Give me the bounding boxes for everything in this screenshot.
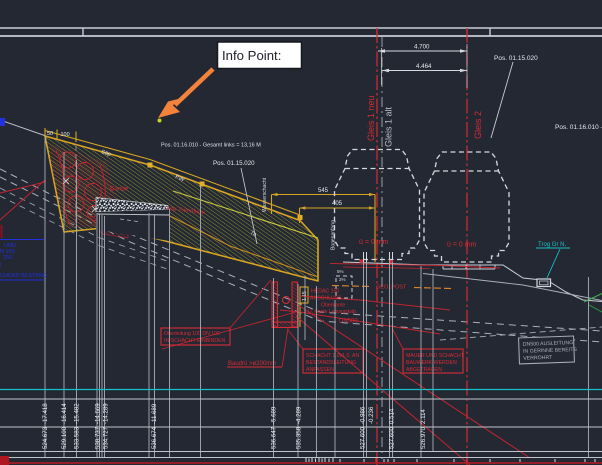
- svg-text:BESTANDSLEITUNG: BESTANDSLEITUNG: [306, 360, 356, 366]
- svg-text:538.737: 538.737: [95, 426, 102, 449]
- svg-text:CHEND BESTAND.: CHEND BESTAND.: [0, 273, 49, 279]
- svg-text:IN SCHACHT EINBINDEN: IN SCHACHT EINBINDEN: [164, 338, 226, 344]
- svg-text:Gleis 2: Gleis 2: [473, 111, 483, 139]
- svg-text:527.600: 527.600: [360, 426, 367, 449]
- svg-text:Oberleitung 100 DN 100: Oberleitung 100 DN 100: [164, 331, 220, 337]
- svg-text:4.464: 4.464: [416, 63, 432, 70]
- svg-text:-15.482: -15.482: [74, 403, 81, 424]
- svg-text:Pos. 01.15.020: Pos. 01.15.020: [213, 160, 255, 167]
- svg-text:-5.689: -5.689: [271, 406, 278, 424]
- svg-text:ABGETRAGEN: ABGETRAGEN: [406, 367, 442, 373]
- svg-text:526.970: 526.970: [420, 426, 427, 449]
- svg-text:Bogenanfang: Bogenanfang: [331, 220, 337, 250]
- svg-text:533.583: 533.583: [74, 426, 81, 449]
- svg-text:2%: 2%: [339, 277, 346, 282]
- svg-text:405: 405: [332, 201, 343, 207]
- svg-text:MAUER UND SCHACHT: MAUER UND SCHACHT: [406, 353, 465, 359]
- svg-text:Info Point:: Info Point:: [222, 48, 281, 63]
- svg-text:-17.418: -17.418: [42, 403, 49, 424]
- svg-text:Gleis 1 alt: Gleis 1 alt: [384, 106, 394, 147]
- svg-text:ü = 0 mm: ü = 0 mm: [447, 242, 477, 249]
- svg-text:527.600: 527.600: [389, 426, 396, 449]
- svg-text:529.100: 529.100: [61, 426, 68, 449]
- svg-text:-0.236: -0.236: [368, 406, 375, 424]
- svg-text:545: 545: [318, 188, 329, 194]
- svg-text:-14.669: -14.669: [95, 403, 102, 424]
- svg-text:Pos. 01.16.010 -: Pos. 01.16.010 -: [555, 124, 602, 131]
- svg-text:-14.289: -14.289: [103, 403, 110, 424]
- svg-text:U. Kante Leitungskab.: U. Kante Leitungskab.: [308, 309, 357, 315]
- svg-text:-4.289: -4.289: [296, 406, 303, 424]
- svg-text:SCHACHT 1.0x1.0, AN: SCHACHT 1.0x1.0, AN: [306, 353, 359, 359]
- svg-text:250: 250: [3, 255, 12, 261]
- svg-text:5%: 5%: [337, 269, 344, 274]
- svg-text:Wasserschacht: Wasserschacht: [262, 177, 268, 212]
- svg-text:524.673: 524.673: [42, 426, 49, 449]
- svg-text:Trog Gr N.: Trog Gr N.: [538, 242, 566, 248]
- svg-text:|: |: [0, 262, 1, 268]
- svg-text:Pos. 01.15.020: Pos. 01.15.020: [494, 55, 538, 62]
- svg-text:0.514: 0.514: [389, 408, 396, 424]
- svg-text:-0.986: -0.986: [360, 406, 367, 424]
- svg-text:536.674: 536.674: [151, 426, 158, 449]
- svg-text:DN500: DN500: [339, 319, 358, 325]
- svg-text:VERROHRT: VERROHRT: [523, 355, 553, 362]
- svg-text:535.358: 535.358: [296, 426, 303, 449]
- svg-text:Gande: Gande: [110, 187, 129, 193]
- svg-text:GEO..POST: GEO..POST: [376, 285, 407, 291]
- svg-text:ANSCHLUSS: ANSCHLUSS: [310, 296, 342, 302]
- svg-text:Oberkante: Oberkante: [321, 303, 345, 309]
- svg-text:-11.689: -11.689: [151, 403, 158, 424]
- svg-text:HEDAC 150: HEDAC 150: [311, 289, 339, 295]
- svg-text:Gleis 1 neu: Gleis 1 neu: [366, 95, 376, 141]
- svg-text:534.727: 534.727: [103, 426, 110, 449]
- svg-text:50: 50: [47, 131, 53, 137]
- svg-text:Pos. 01.16.010 - Gesamt links: Pos. 01.16.010 - Gesamt links = 13,16 M: [161, 143, 261, 149]
- svg-text:ANPASSEN: ANPASSEN: [306, 367, 334, 373]
- svg-text:Baudrü >ø200mm: Baudrü >ø200mm: [228, 361, 276, 367]
- svg-text:-16.414: -16.414: [61, 403, 68, 424]
- svg-text:536.647: 536.647: [271, 426, 278, 449]
- svg-text:100: 100: [61, 132, 70, 138]
- svg-text:4.700: 4.700: [414, 44, 430, 51]
- svg-text:ü = 0 mm: ü = 0 mm: [359, 239, 389, 246]
- svg-text:BAUWERK WERDEN: BAUWERK WERDEN: [406, 360, 457, 366]
- svg-text:2.114: 2.114: [420, 409, 427, 424]
